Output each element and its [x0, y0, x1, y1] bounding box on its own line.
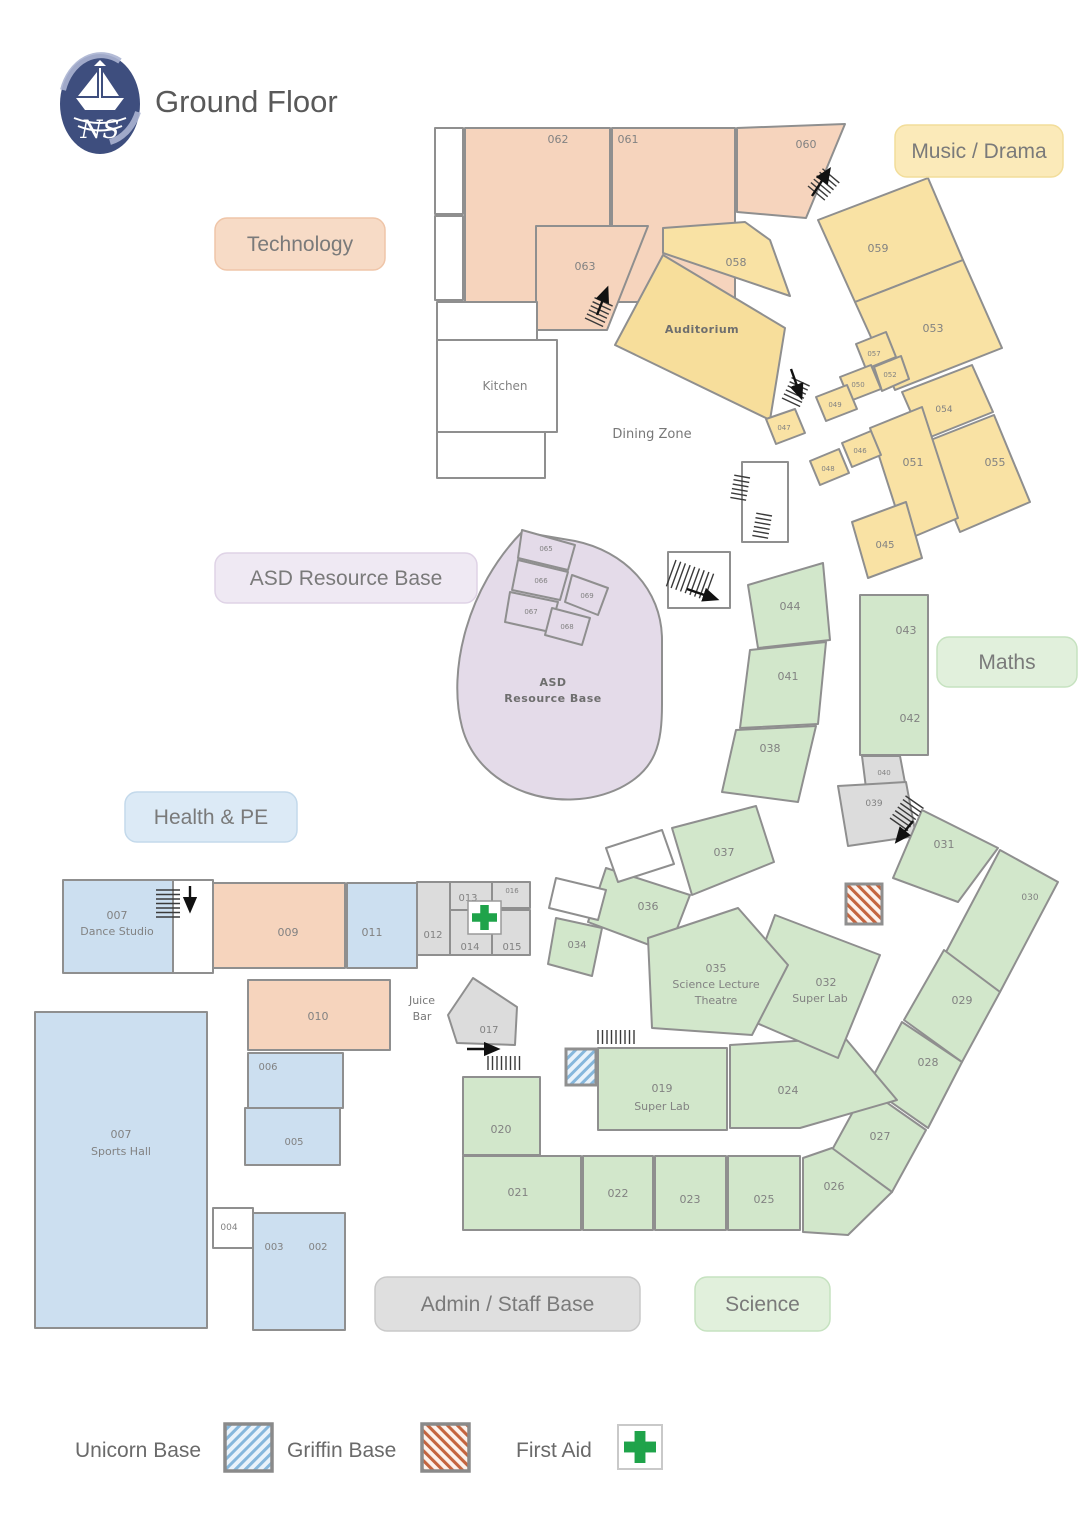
legend-item-unicorn-base: Unicorn Base: [75, 1424, 272, 1471]
room-shape-w9: [668, 552, 730, 608]
room-label-034: 034: [567, 940, 586, 951]
room-043-042: 043042: [860, 595, 928, 755]
area-label-asd-resource-base: ASD Resource Base: [215, 553, 477, 603]
room-037: 037: [672, 806, 774, 895]
room-shape-012: [417, 882, 450, 955]
legend-item-first-aid: First Aid: [516, 1425, 662, 1469]
room-label-010: 010: [308, 1010, 329, 1023]
room-w9: [668, 552, 730, 608]
floor-plan-map: NS Ground Floor 062061060063009010058Aud…: [0, 0, 1086, 1536]
room-label-060: 060: [796, 138, 817, 151]
logo-monogram: NS: [79, 115, 119, 144]
room-label-asd-base: ASD: [539, 676, 566, 689]
legend-layer: Unicorn BaseGriffin BaseFirst Aid: [75, 1424, 662, 1471]
room-038: 038: [722, 726, 816, 802]
room-017: 017: [448, 978, 517, 1045]
room-010: 010: [248, 980, 390, 1050]
room-label-024: 024: [778, 1084, 799, 1097]
room-021: 021: [463, 1156, 581, 1230]
room-label-auditorium: Auditorium: [665, 323, 739, 336]
room-label-065: 065: [539, 545, 552, 553]
room-label-028: 028: [918, 1056, 939, 1069]
room-label-004: 004: [220, 1223, 237, 1233]
rooms-layer: 062061060063009010058Auditorium059053054…: [35, 124, 1058, 1330]
room-shape-w2: [435, 216, 463, 300]
school-logo: NS: [60, 54, 140, 154]
area-label-admin-staff-base: Admin / Staff Base: [375, 1277, 640, 1331]
room-label-012: 012: [423, 930, 442, 941]
room-label-007-dance: 007: [107, 909, 128, 922]
room-label-017: 017: [479, 1025, 498, 1036]
room-label-035: Science Lecture: [672, 978, 759, 991]
area-label-health-pe: Health & PE: [125, 792, 297, 842]
room-025: 025: [728, 1156, 800, 1230]
room-label-009: 009: [278, 926, 299, 939]
room-label-016: 016: [505, 887, 519, 895]
room-label-057: 057: [867, 350, 880, 358]
map-text-juice-bar-line2: Bar: [413, 1010, 432, 1023]
room-shape-007-sports: [35, 1012, 207, 1328]
room-label-015: 015: [502, 942, 521, 953]
stairs-icon: [156, 890, 180, 917]
griffin-base-marker: [846, 884, 882, 924]
room-041: 041: [740, 642, 826, 728]
room-label-063: 063: [575, 260, 596, 273]
stairs-icon: [598, 1030, 634, 1044]
room-label-007-sports: Sports Hall: [91, 1145, 151, 1158]
room-label-048: 048: [821, 465, 834, 473]
floor-plan-page: NS Ground Floor 062061060063009010058Aud…: [0, 0, 1086, 1536]
room-kitchen: Kitchen: [437, 340, 557, 432]
unicorn-base-marker: [566, 1049, 596, 1085]
room-label-068: 068: [560, 623, 573, 631]
room-label-022: 022: [608, 1187, 629, 1200]
room-label-019: Super Lab: [634, 1100, 690, 1113]
room-034: 034: [548, 918, 602, 976]
legend-item-griffin-base: Griffin Base: [287, 1424, 469, 1471]
room-label-032: Super Lab: [792, 992, 848, 1005]
room-label-040: 040: [877, 769, 890, 777]
room-shape-w8: [742, 462, 788, 542]
room-label-047: 047: [777, 424, 790, 432]
room-shape-020: [463, 1077, 540, 1155]
legend-label-first-aid: First Aid: [516, 1439, 592, 1462]
room-label-025: 025: [754, 1193, 775, 1206]
room-011: 011: [347, 883, 417, 968]
room-label-066: 066: [534, 577, 548, 585]
page-title: Ground Floor: [155, 84, 338, 119]
area-label-text-asd-resource-base: ASD Resource Base: [250, 567, 443, 590]
unicorn-base-swatch-icon: [225, 1424, 272, 1471]
room-w3: [437, 302, 537, 340]
area-label-maths: Maths: [937, 637, 1077, 687]
room-label-044: 044: [780, 600, 801, 613]
room-label-039: 039: [865, 799, 882, 809]
room-label-029: 029: [952, 994, 973, 1007]
area-label-technology: Technology: [215, 218, 385, 270]
room-022: 022: [583, 1156, 653, 1230]
room-label-014: 014: [460, 942, 479, 953]
room-label-069: 069: [580, 592, 593, 600]
room-048: 048: [810, 449, 849, 485]
room-label-002-003: 002: [308, 1242, 327, 1253]
room-shape-043-042: [860, 595, 928, 755]
room-label-023: 023: [680, 1193, 701, 1206]
room-009: 009: [213, 883, 345, 968]
room-label-043-042: 043: [896, 624, 917, 637]
area-label-text-maths: Maths: [978, 651, 1035, 674]
legend-label-unicorn-base: Unicorn Base: [75, 1439, 201, 1462]
room-023: 023: [655, 1156, 726, 1230]
room-label-031: 031: [934, 838, 955, 851]
room-label-019: 019: [652, 1082, 673, 1095]
room-002-003: 003002: [253, 1213, 345, 1330]
area-label-text-music-drama: Music / Drama: [911, 140, 1047, 163]
room-006: 006: [248, 1053, 343, 1108]
room-label-020: 020: [491, 1123, 512, 1136]
room-label-038: 038: [760, 742, 781, 755]
area-label-music-drama: Music / Drama: [895, 125, 1063, 177]
room-label-049: 049: [828, 401, 841, 409]
room-label-006: 006: [258, 1062, 277, 1073]
map-text-dining-zone: Dining Zone: [612, 427, 691, 442]
first-aid-icon: [468, 901, 501, 934]
room-label-043-042: 042: [900, 712, 921, 725]
room-label-032: 032: [816, 976, 837, 989]
room-label-036: 036: [638, 900, 659, 913]
room-label-037: 037: [714, 846, 735, 859]
room-019: 019Super Lab: [598, 1048, 727, 1130]
room-label-055: 055: [985, 456, 1006, 469]
room-label-007-dance: Dance Studio: [80, 925, 154, 938]
room-shape-039: [838, 782, 916, 846]
room-020: 020: [463, 1077, 540, 1155]
room-label-021: 021: [508, 1186, 529, 1199]
griffin-base-swatch-icon: [422, 1424, 469, 1471]
room-label-kitchen: Kitchen: [482, 379, 527, 393]
room-label-067: 067: [524, 608, 537, 616]
room-shape-002-003: [253, 1213, 345, 1330]
room-label-054: 054: [935, 405, 952, 415]
room-label-027: 027: [870, 1130, 891, 1143]
area-label-text-health-pe: Health & PE: [154, 806, 268, 829]
room-007-sports: 007Sports Hall: [35, 1012, 207, 1328]
room-label-asd-base: Resource Base: [504, 692, 601, 705]
room-label-007-sports: 007: [111, 1128, 132, 1141]
room-label-026: 026: [824, 1180, 845, 1193]
room-w2: [435, 216, 463, 300]
room-044: 044: [748, 563, 830, 648]
area-label-text-science: Science: [725, 1293, 800, 1316]
room-shape-w3: [437, 302, 537, 340]
room-label-050: 050: [851, 381, 864, 389]
room-label-061: 061: [618, 133, 639, 146]
room-label-035: 035: [706, 962, 727, 975]
room-label-005: 005: [284, 1137, 303, 1148]
room-004: 004: [213, 1208, 253, 1248]
room-label-011: 011: [362, 926, 383, 939]
room-shape-w1: [435, 128, 463, 214]
room-w6: [549, 878, 606, 920]
room-label-051: 051: [903, 456, 924, 469]
room-shape-w5: [437, 432, 545, 478]
room-label-035: Theatre: [694, 994, 738, 1007]
room-label-046: 046: [853, 447, 867, 455]
room-label-062: 062: [548, 133, 569, 146]
room-shape-w7: [606, 830, 674, 882]
room-label-002-003: 003: [264, 1242, 283, 1253]
room-012: 012: [417, 882, 450, 955]
room-label-053: 053: [923, 322, 944, 335]
map-text-juice-bar: Juice: [408, 994, 435, 1007]
room-label-030: 030: [1021, 893, 1038, 903]
room-label-045: 045: [875, 540, 894, 551]
room-label-059: 059: [868, 242, 889, 255]
room-shape-w6: [549, 878, 606, 920]
legend-label-griffin-base: Griffin Base: [287, 1439, 396, 1462]
room-w8: [742, 462, 788, 542]
room-shape-038: [722, 726, 816, 802]
room-w1: [435, 128, 463, 214]
area-label-text-technology: Technology: [247, 233, 354, 256]
room-005: 005: [245, 1108, 340, 1165]
stairs-icon: [488, 1056, 520, 1070]
area-label-text-admin-staff-base: Admin / Staff Base: [421, 1293, 595, 1316]
room-label-058: 058: [726, 256, 747, 269]
room-label-041: 041: [778, 670, 799, 683]
room-w7: [606, 830, 674, 882]
room-label-052: 052: [883, 371, 896, 379]
room-w5: [437, 432, 545, 478]
area-label-science: Science: [695, 1277, 830, 1331]
room-shape-041: [740, 642, 826, 728]
room-039: 039: [838, 782, 916, 846]
